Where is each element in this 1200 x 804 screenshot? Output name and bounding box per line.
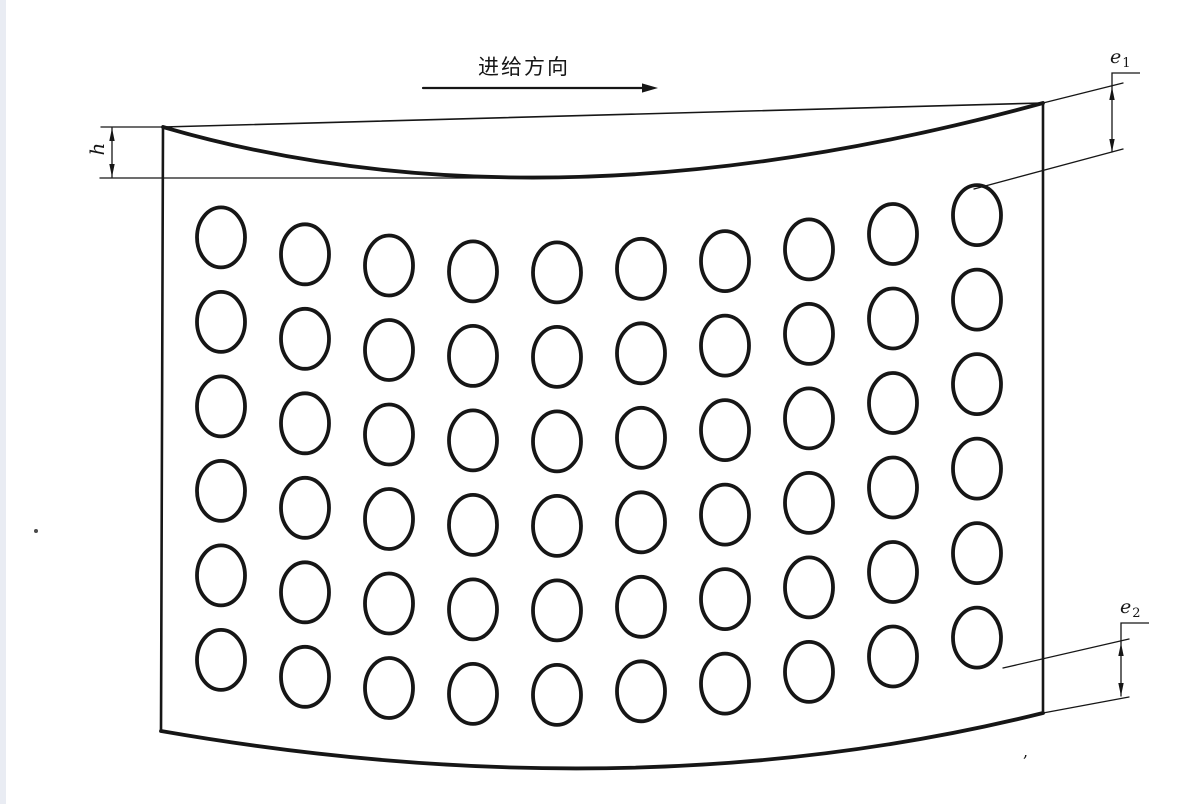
hole [701,316,749,376]
hole [869,204,917,264]
hole [953,354,1001,414]
hole [617,323,665,383]
dim-h-arrow-up [109,128,114,141]
dim-e1-subscript: 1 [1122,56,1130,71]
hole [281,393,329,453]
plate-top-reference-line [163,103,1043,127]
hole [281,478,329,538]
dim-e2-subscript: 2 [1132,606,1140,621]
hole [785,219,833,279]
hole [281,224,329,284]
diagram-canvas: , [0,0,1200,804]
dim-h-arrow-down [109,164,114,177]
hole [617,492,665,552]
hole [449,579,497,639]
hole [953,439,1001,499]
hole [365,320,413,380]
hole [281,562,329,622]
hole [953,185,1001,245]
hole [197,545,245,605]
hole [281,647,329,707]
hole [701,231,749,291]
hole [617,408,665,468]
dim-e2-extension-line-2 [1043,697,1129,713]
hole [197,207,245,267]
hole [785,473,833,533]
hole [785,642,833,702]
hole [869,542,917,602]
hole [533,665,581,725]
hole [449,241,497,301]
hole [617,661,665,721]
dim-e2-extension-line-1 [1003,639,1129,668]
hole [785,304,833,364]
scan-comma-artifact: , [1023,742,1028,761]
hole [533,580,581,640]
hole [869,458,917,518]
dim-e2-arrow-down [1118,683,1123,696]
hole [365,489,413,549]
hole [869,627,917,687]
hole [197,292,245,352]
hole [365,658,413,718]
hole [365,236,413,296]
feed-direction-arrowhead [642,83,658,92]
hole [449,495,497,555]
hole [869,289,917,349]
hole [449,664,497,724]
hole [785,557,833,617]
hole [701,485,749,545]
dim-h-label: h [85,134,109,164]
dim-e2-label: e2 [1120,596,1140,619]
hole [785,388,833,448]
hole [365,574,413,634]
hole [533,242,581,302]
perforated-plate-figure: , 进给方向 h e1 e2 [0,0,1200,804]
dim-e1-label: e1 [1110,46,1130,69]
plate-left-edge [161,127,163,731]
hole [449,410,497,470]
dim-e1-arrow-up [1109,87,1114,100]
hole [701,569,749,629]
feed-direction-label: 进给方向 [404,51,644,81]
hole [365,405,413,465]
scan-dot-artifact [34,529,38,533]
scan-edge-artifact [0,0,6,804]
hole [869,373,917,433]
plate-bottom-edge-curve [161,713,1043,768]
hole [197,630,245,690]
hole [617,239,665,299]
hole [197,376,245,436]
hole [617,577,665,637]
hole [701,654,749,714]
hole [533,496,581,556]
plate-top-edge-curve [163,103,1043,178]
hole [953,608,1001,668]
hole [197,461,245,521]
hole [449,326,497,386]
hole [953,523,1001,583]
hole [953,270,1001,330]
dim-e1-arrow-down [1109,139,1114,152]
hole [533,327,581,387]
dim-e1-extension-line-2 [974,149,1123,189]
dim-e2-arrow-up [1118,643,1123,656]
hole [701,400,749,460]
hole [533,411,581,471]
hole [281,309,329,369]
